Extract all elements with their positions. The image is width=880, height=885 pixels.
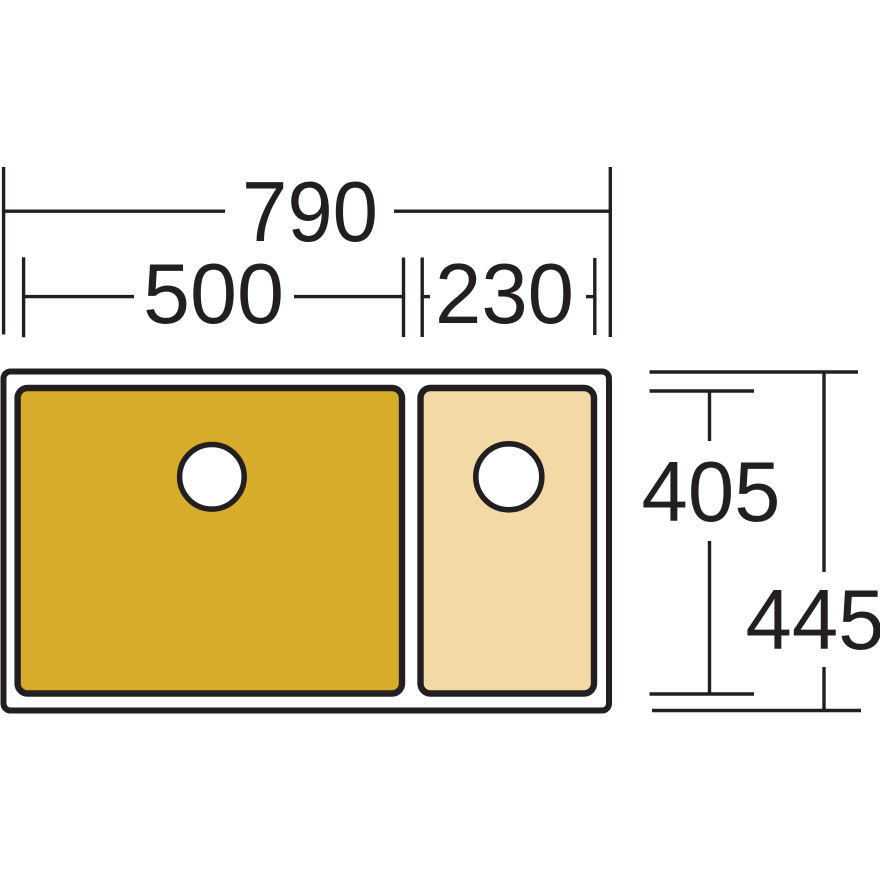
svg-text:445: 445 (746, 573, 880, 668)
svg-text:405: 405 (642, 445, 781, 540)
svg-text:790: 790 (242, 165, 378, 260)
svg-text:500: 500 (143, 247, 284, 342)
svg-text:230: 230 (435, 247, 574, 342)
